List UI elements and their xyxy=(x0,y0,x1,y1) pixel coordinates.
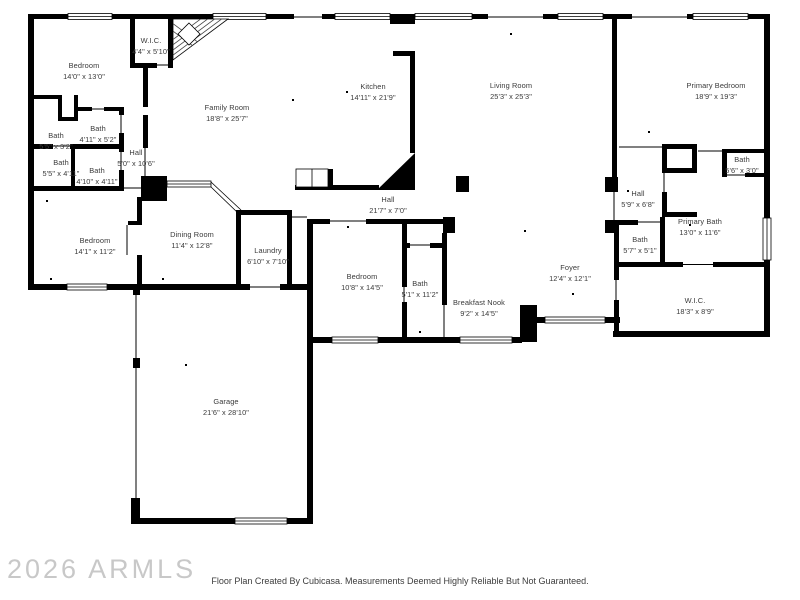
room-dimensions: 4'11" x 5'2" xyxy=(79,135,116,146)
room-name: Bath xyxy=(401,279,438,290)
room-label: W.I.C.18'3" x 8'9" xyxy=(676,296,714,317)
room-dimensions: 5'5" x 3'2" xyxy=(39,142,72,153)
room-label: Garage21'6" x 28'10" xyxy=(203,397,249,418)
room-dimensions: 5'7" x 5'1" xyxy=(623,246,656,257)
room-name: Family Room xyxy=(205,103,250,114)
floor-plan: W.I.C.4'4" x 5'10"Bedroom14'0" x 13'0"Fa… xyxy=(0,0,800,600)
room-dimensions: 5'5" x 4'11" xyxy=(42,169,79,180)
room-label: Bedroom14'0" x 13'0" xyxy=(63,61,105,82)
room-name: Garage xyxy=(203,397,249,408)
room-dimensions: 6'10" x 7'10" xyxy=(247,257,289,268)
room-dimensions: 18'8" x 25'7" xyxy=(205,114,250,125)
room-dimensions: 5'0" x 10'6" xyxy=(117,159,155,170)
room-dimensions: 14'11" x 21'9" xyxy=(350,93,396,104)
room-dimensions: 4'10" x 4'11" xyxy=(76,177,117,188)
windows xyxy=(67,14,771,525)
room-name: Foyer xyxy=(549,263,591,274)
room-label: Living Room25'3" x 25'3" xyxy=(490,81,532,102)
door-openings xyxy=(53,17,745,503)
room-label: Hall5'0" x 10'6" xyxy=(117,148,155,169)
room-label: Bath5'5" x 3'2" xyxy=(39,131,72,152)
room-dimensions: 25'3" x 25'3" xyxy=(490,92,532,103)
room-name: Hall xyxy=(621,189,654,200)
room-label: Bath5'7" x 5'1" xyxy=(623,235,656,256)
room-name: W.I.C. xyxy=(132,36,170,47)
room-name: W.I.C. xyxy=(676,296,714,307)
room-dimensions: 4'4" x 5'10" xyxy=(132,47,170,58)
room-dimensions: 21'6" x 28'10" xyxy=(203,408,249,419)
room-dimensions: 5'6" x 3'0" xyxy=(725,166,758,177)
room-dimensions: 21'7" x 7'0" xyxy=(369,206,407,217)
room-name: Bath xyxy=(623,235,656,246)
room-name: Bedroom xyxy=(74,236,115,247)
room-name: Primary Bath xyxy=(678,217,722,228)
room-label: Laundry6'10" x 7'10" xyxy=(247,246,289,267)
room-label: W.I.C.4'4" x 5'10" xyxy=(132,36,170,57)
room-name: Bath xyxy=(76,166,117,177)
kitchen-corner-wall xyxy=(377,153,415,190)
room-dimensions: 18'3" x 8'9" xyxy=(676,307,714,318)
room-name: Laundry xyxy=(247,246,289,257)
room-name: Bedroom xyxy=(63,61,105,72)
room-label: Breakfast Nook9'2" x 14'5" xyxy=(453,298,505,319)
room-name: Living Room xyxy=(490,81,532,92)
room-dimensions: 5'9" x 6'8" xyxy=(621,200,654,211)
room-label: Primary Bedroom18'9" x 19'3" xyxy=(687,81,746,102)
room-name: Bath xyxy=(725,155,758,166)
room-label: Bath5'1" x 11'2" xyxy=(401,279,438,300)
footer-disclaimer: Floor Plan Created By Cubicasa. Measurem… xyxy=(0,576,800,586)
room-label: Primary Bath13'0" x 11'6" xyxy=(678,217,722,238)
room-label: Hall21'7" x 7'0" xyxy=(369,195,407,216)
fireplace xyxy=(141,176,167,201)
room-name: Primary Bedroom xyxy=(687,81,746,92)
room-name: Bedroom xyxy=(341,272,383,283)
room-label: Bedroom10'8" x 14'5" xyxy=(341,272,383,293)
room-label: Foyer12'4" x 12'1" xyxy=(549,263,591,284)
room-name: Hall xyxy=(117,148,155,159)
room-label: Bath4'10" x 4'11" xyxy=(76,166,117,187)
room-dimensions: 14'1" x 11'2" xyxy=(74,247,115,258)
room-label: Dining Room11'4" x 12'8" xyxy=(170,230,214,251)
room-label: Kitchen14'11" x 21'9" xyxy=(350,82,396,103)
room-dimensions: 5'1" x 11'2" xyxy=(401,290,438,301)
room-name: Breakfast Nook xyxy=(453,298,505,309)
room-dimensions: 10'8" x 14'5" xyxy=(341,283,383,294)
room-label: Bath5'6" x 3'0" xyxy=(725,155,758,176)
pillar xyxy=(456,176,469,192)
room-dimensions: 12'4" x 12'1" xyxy=(549,274,591,285)
room-name: Kitchen xyxy=(350,82,396,93)
room-name: Bath xyxy=(39,131,72,142)
room-label: Bath4'11" x 5'2" xyxy=(79,124,116,145)
room-name: Dining Room xyxy=(170,230,214,241)
room-name: Bath xyxy=(42,158,79,169)
room-label: Bedroom14'1" x 11'2" xyxy=(74,236,115,257)
room-label: Family Room18'8" x 25'7" xyxy=(205,103,250,124)
room-dimensions: 14'0" x 13'0" xyxy=(63,72,105,83)
room-label: Hall5'9" x 6'8" xyxy=(621,189,654,210)
room-name: Bath xyxy=(79,124,116,135)
room-label: Bath5'5" x 4'11" xyxy=(42,158,79,179)
room-dimensions: 9'2" x 14'5" xyxy=(453,309,505,320)
room-dimensions: 18'9" x 19'3" xyxy=(687,92,746,103)
room-name: Hall xyxy=(369,195,407,206)
room-dimensions: 11'4" x 12'8" xyxy=(170,241,214,252)
room-dimensions: 13'0" x 11'6" xyxy=(678,228,722,239)
